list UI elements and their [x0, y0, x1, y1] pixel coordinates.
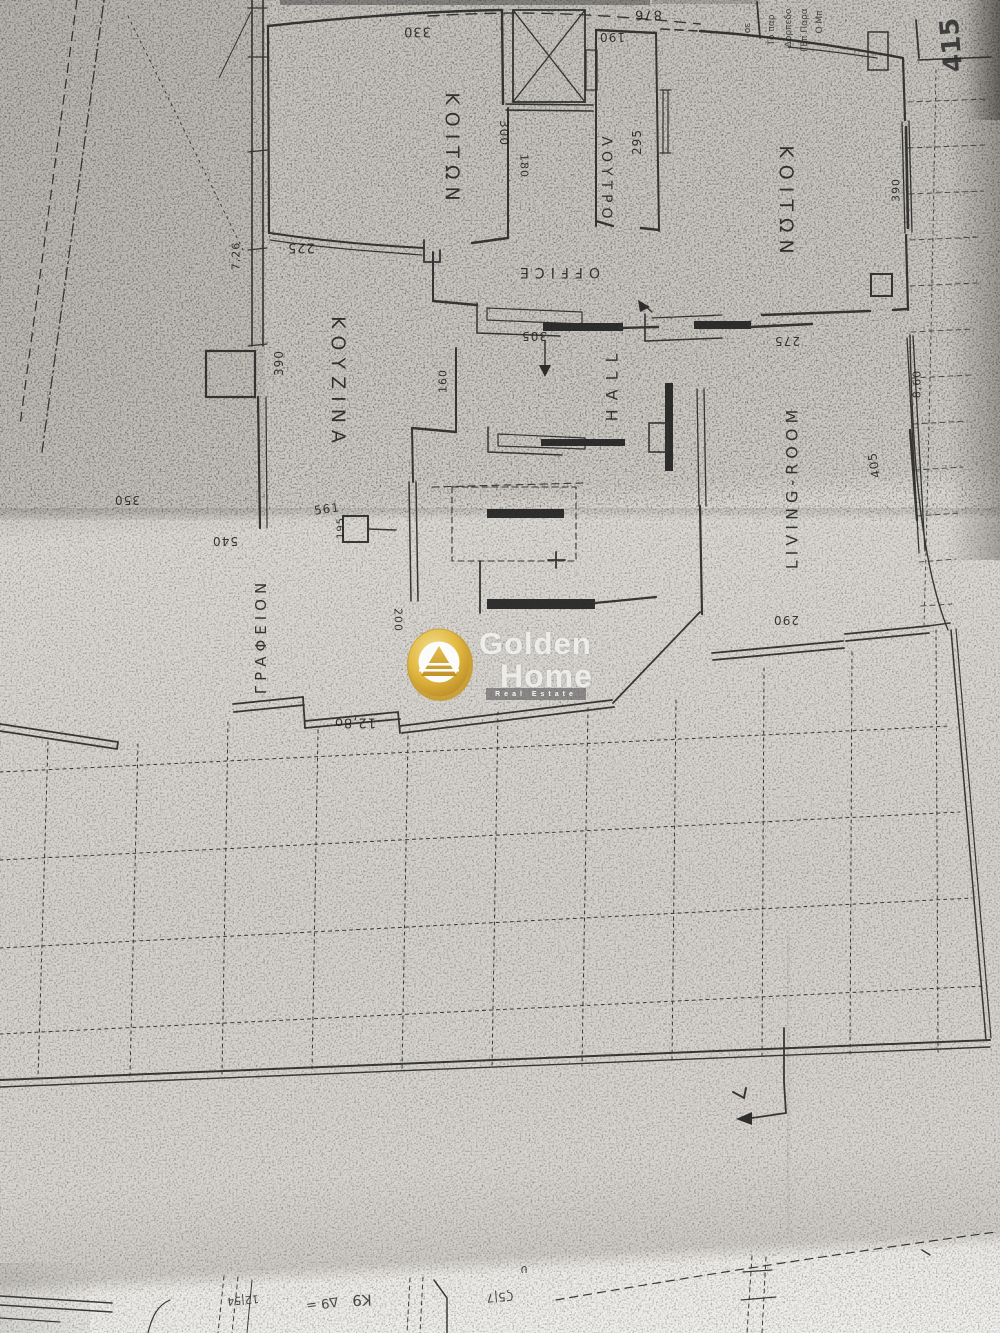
room-label-bedroom-right: ΚΟΙΤΩΝ [775, 145, 797, 260]
note-top-1: Τό παρ [767, 15, 777, 46]
note-top-4: Ο Μπ [815, 10, 825, 33]
dim-label-540-20: 540 [212, 534, 238, 548]
room-label-living-room: LIVING-ROOM [783, 405, 802, 570]
note-top-2: Δορπεδο [784, 9, 794, 48]
note-bottom-5: υ [521, 1263, 528, 1277]
room-label-kitchen: ΚΟΥΖΙΝΑ [327, 316, 349, 450]
dim-label-12,8o-21: 12,8o [334, 715, 376, 730]
dim-label-295-5: 295 [630, 129, 644, 155]
note-top-5: οε [743, 23, 753, 33]
room-label-bedroom-left: ΚΟΙΤΩΝ [441, 92, 463, 207]
dim-label-405-14: 405 [865, 451, 883, 479]
dim-label-160-9: 160 [437, 369, 450, 393]
note-bottom-4: Ϛ5|7 [486, 1289, 514, 1305]
note-415: 415 [935, 17, 970, 74]
dim-label-305-10: 305 [521, 329, 547, 343]
room-label-study: ΓΡΑΦΕΙΟΝ [252, 578, 270, 694]
dim-label-876-0: 876 [634, 7, 662, 22]
note-bottom-2: Κ9 [352, 1291, 372, 1310]
dim-label-390-8: 390 [272, 350, 286, 376]
dim-label-195-18: 195 [336, 517, 347, 539]
dim-label-350-19: 350 [114, 493, 140, 507]
note-bottom-1: Δ9 = [305, 1293, 339, 1312]
dim-label-300-3: 300 [497, 120, 511, 146]
dim-label-561-17: 561 [313, 500, 341, 517]
dim-label-290-15: 290 [773, 613, 799, 627]
logo-tagline: Real Estate [495, 691, 577, 698]
dim-label-7,26-7: 7,26 [230, 242, 243, 271]
logo-tagline-bar: Real Estate [486, 688, 586, 700]
room-label-bathroom: ΛΟΥΤΡΟ [598, 136, 614, 223]
golden-home-coin-icon [405, 626, 475, 702]
floorplan-photo: ΚΟΙΤΩΝΛΟΥΤΡΟOFFICEΚΟΥΖΙΝΑHALLΚΟΙΤΩΝLIVIN… [0, 0, 1000, 1333]
room-label-office: OFFICE [514, 264, 600, 280]
dim-label-390-12: 390 [890, 178, 903, 202]
note-bottom-3: 12|54 [227, 1292, 260, 1308]
dim-label-330-1: 330 [403, 24, 431, 39]
dim-label-8,60-13: 8,60 [911, 370, 924, 399]
dim-label-190-2: 190 [599, 30, 625, 44]
logo-text-line1: Golden [479, 626, 592, 662]
room-label-hall: HALL [603, 345, 622, 422]
dim-label-225-6: 225 [287, 240, 315, 255]
golden-home-watermark: Golden Home Real Estate [398, 618, 638, 713]
dim-label-180-4: 180 [518, 154, 531, 178]
note-top-3: ΓΕπ Παρα [800, 8, 810, 51]
dim-label-275-11: 275 [774, 334, 800, 348]
